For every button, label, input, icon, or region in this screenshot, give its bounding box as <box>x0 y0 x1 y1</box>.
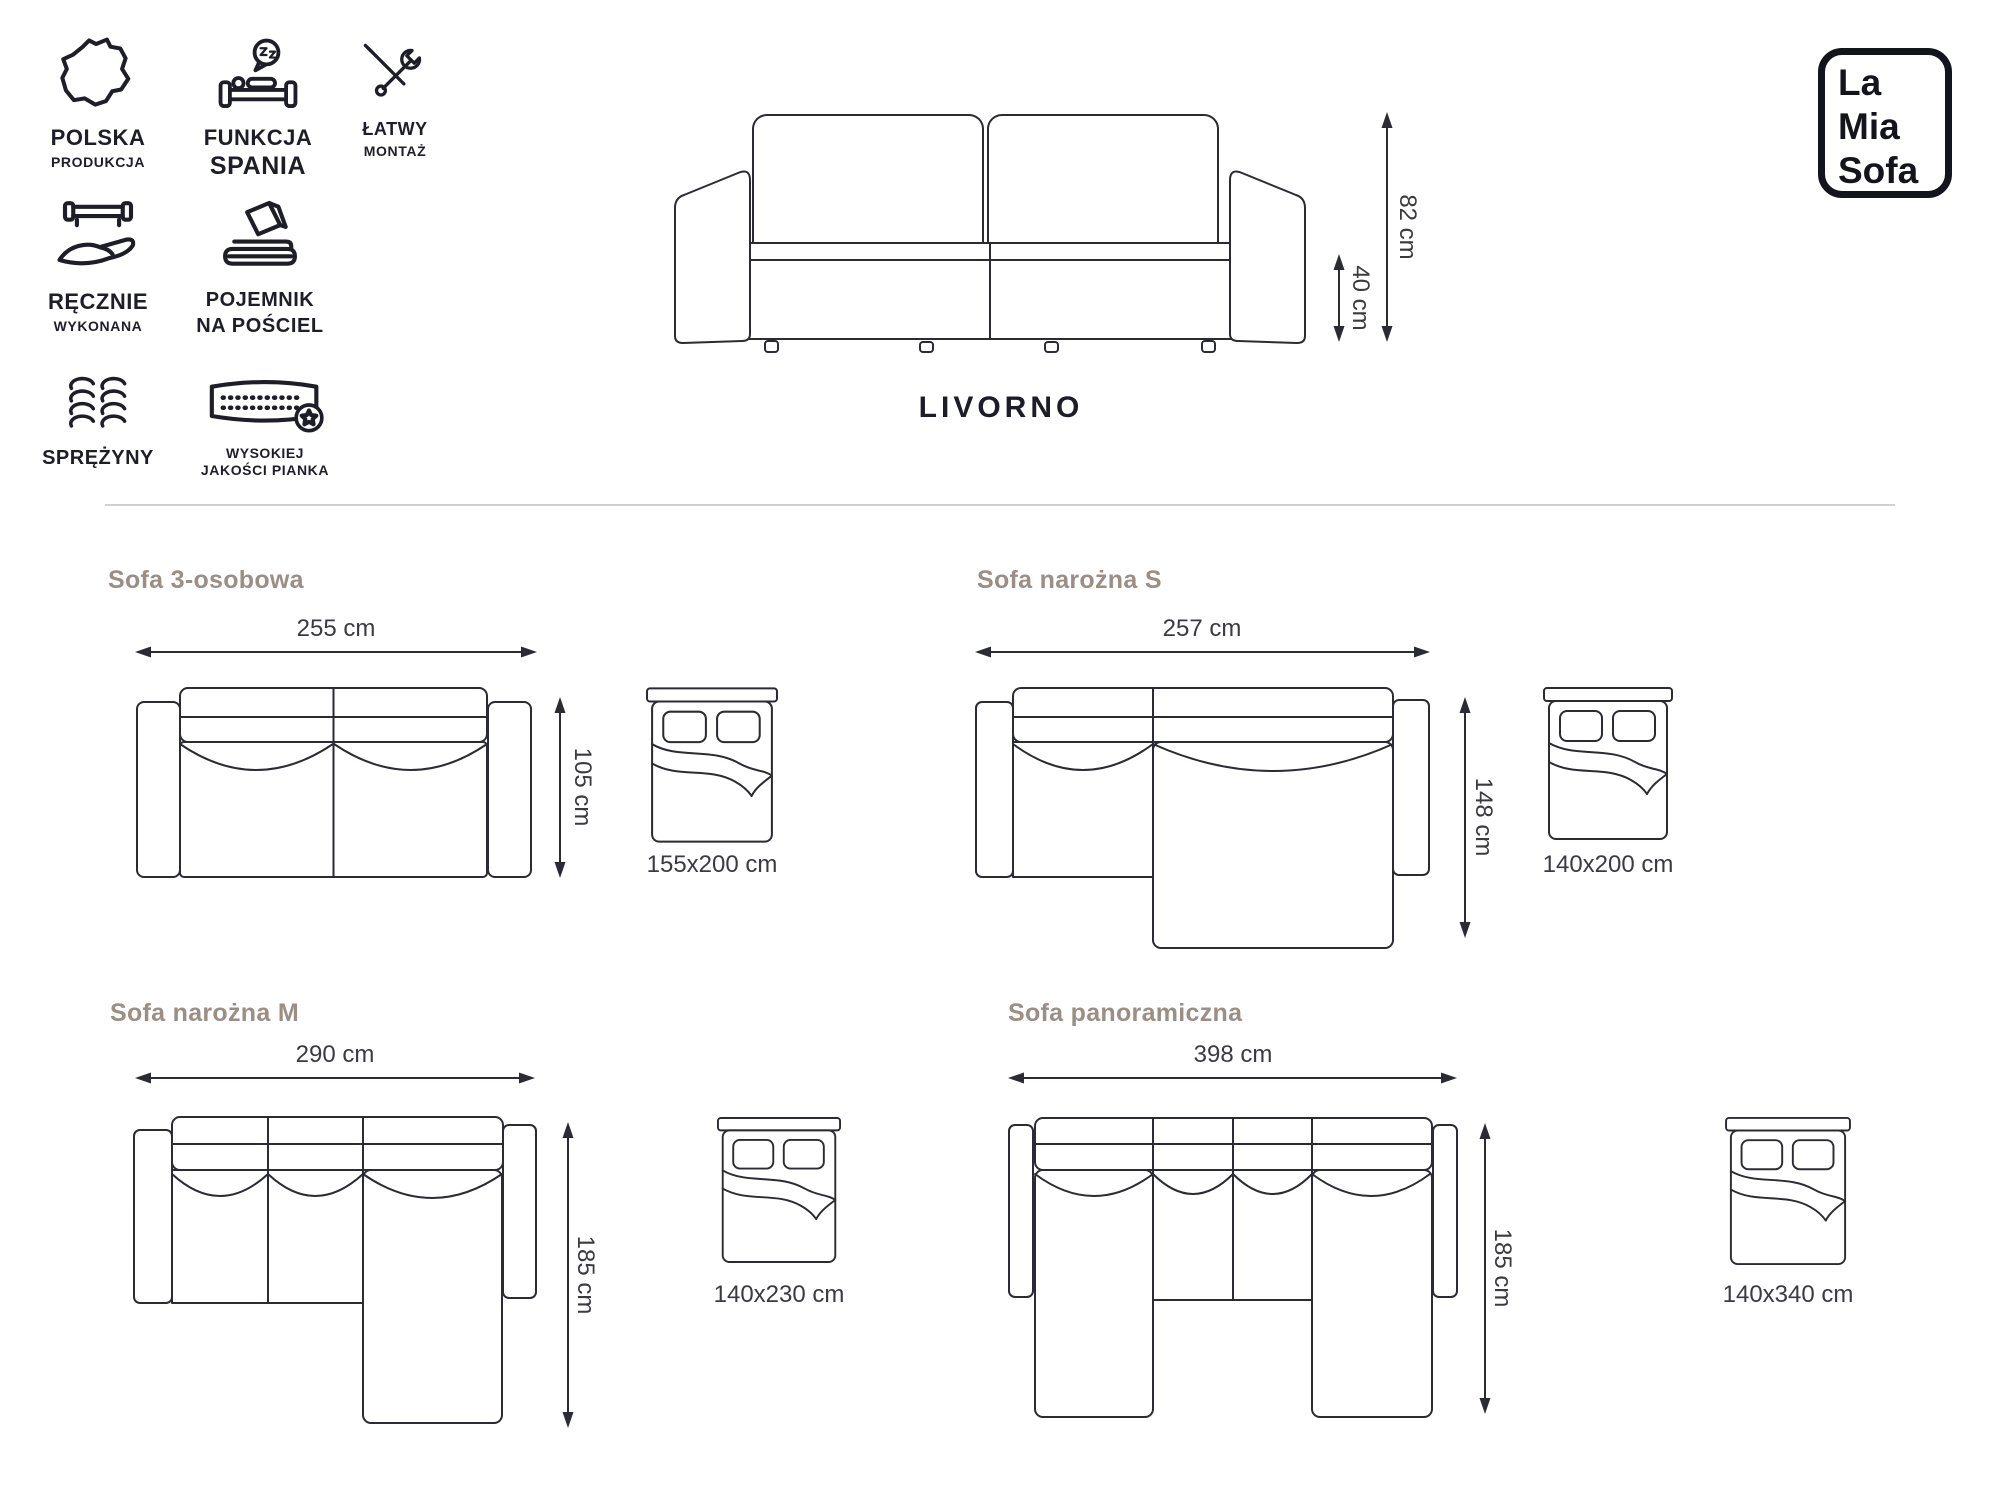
section-divider <box>105 504 1895 506</box>
variant-depth-label: 148 cm <box>1470 757 1496 877</box>
logo-line-2: Mia <box>1838 105 1945 149</box>
logo-line-3: Sofa <box>1838 149 1945 193</box>
sofa-top-view-panoramiczna <box>1008 1116 1458 1418</box>
feature-label: FUNKCJA <box>183 125 333 151</box>
height-arrow <box>1379 112 1395 342</box>
feature-sublabel: JAKOŚCI PIANKA <box>180 462 350 478</box>
bed-size-label: 155x200 cm <box>612 851 812 879</box>
feature-pojemnik-na-posciel: POJEMNIK NA POŚCIEL <box>180 192 340 338</box>
feature-label: POLSKA <box>28 125 168 151</box>
feature-funkcja-spania: FUNKCJA SPANIA <box>183 38 333 181</box>
bedding-storage-icon <box>214 192 306 282</box>
logo-line-1: La <box>1838 61 1945 105</box>
variant-depth-label: 105 cm <box>569 727 595 847</box>
bed-icon <box>1723 1116 1853 1266</box>
springs-icon <box>58 368 138 440</box>
bed-icon <box>1543 686 1673 841</box>
width-arrow <box>975 644 1430 660</box>
sofa-top-view-3-osobowa <box>135 686 533 882</box>
bed-size-label: 140x230 cm <box>679 1281 879 1309</box>
product-name: LIVORNO <box>801 391 1201 425</box>
feature-sublabel: PRODUKCJA <box>28 154 168 170</box>
variant-width-label: 290 cm <box>235 1041 435 1069</box>
variant-depth-label: 185 cm <box>1489 1208 1515 1328</box>
variant-title-sofa-panoramiczna: Sofa panoramiczna <box>1008 999 1242 1028</box>
feature-sublabel: WYKONANA <box>28 318 168 334</box>
feature-sprezyny: SPRĘŻYNY <box>38 368 158 470</box>
sofa-front-view-drawing <box>670 110 1310 360</box>
variant-depth-label: 185 cm <box>572 1215 598 1335</box>
depth-arrow <box>552 697 568 878</box>
width-arrow <box>1008 1070 1457 1086</box>
feature-wysokiej-jakosci-pianka: WYSOKIEJ JAKOŚCI PIANKA <box>180 372 350 478</box>
variant-width-label: 255 cm <box>236 615 436 643</box>
bed-size-label: 140x340 cm <box>1688 1281 1888 1309</box>
bed-size-label: 140x200 cm <box>1508 851 1708 879</box>
feature-label: RĘCZNIE <box>28 289 168 315</box>
feature-sublabel: NA POŚCIEL <box>180 315 340 338</box>
handmade-icon <box>52 194 144 282</box>
width-arrow <box>135 1070 535 1086</box>
variant-title-sofa-narozna-s: Sofa narożna S <box>977 566 1162 595</box>
product-spec-sheet: POLSKA PRODUKCJA FUNKCJA SPANIA ŁATWY MO… <box>0 0 2000 1500</box>
sofa-top-view-narozna-s <box>975 686 1430 951</box>
feature-sublabel: SPANIA <box>183 152 333 181</box>
variant-width-label: 257 cm <box>1102 615 1302 643</box>
feature-sublabel: MONTAŻ <box>330 143 460 159</box>
la-mia-sofa-logo: La Mia Sofa <box>1818 48 1952 198</box>
height-dimension-label: 82 cm <box>1394 167 1420 287</box>
feature-label: SPRĘŻYNY <box>38 447 158 470</box>
feature-label: POJEMNIK <box>180 289 340 312</box>
variant-title-sofa-narozna-m: Sofa narożna M <box>110 999 299 1028</box>
feature-latwy-montaz: ŁATWY MONTAŻ <box>330 38 460 159</box>
sofa-top-view-narozna-m <box>133 1116 537 1428</box>
feature-label: WYSOKIEJ <box>180 445 350 461</box>
bed-icon <box>717 1116 841 1264</box>
easy-assembly-icon <box>358 38 432 112</box>
variant-width-label: 398 cm <box>1133 1041 1333 1069</box>
foam-quality-icon <box>200 372 330 438</box>
variant-title-sofa-3-osobowa: Sofa 3-osobowa <box>108 566 304 595</box>
sleep-function-icon <box>215 38 301 118</box>
seat-height-dimension-label: 40 cm <box>1347 238 1373 358</box>
feature-polska-produkcja: POLSKA PRODUKCJA <box>28 36 168 170</box>
bed-icon <box>646 686 778 844</box>
seat-height-arrow <box>1331 254 1347 342</box>
poland-map-icon <box>53 36 143 118</box>
feature-label: ŁATWY <box>330 119 460 140</box>
feature-recznie-wykonana: RĘCZNIE WYKONANA <box>28 194 168 334</box>
width-arrow <box>135 644 537 660</box>
